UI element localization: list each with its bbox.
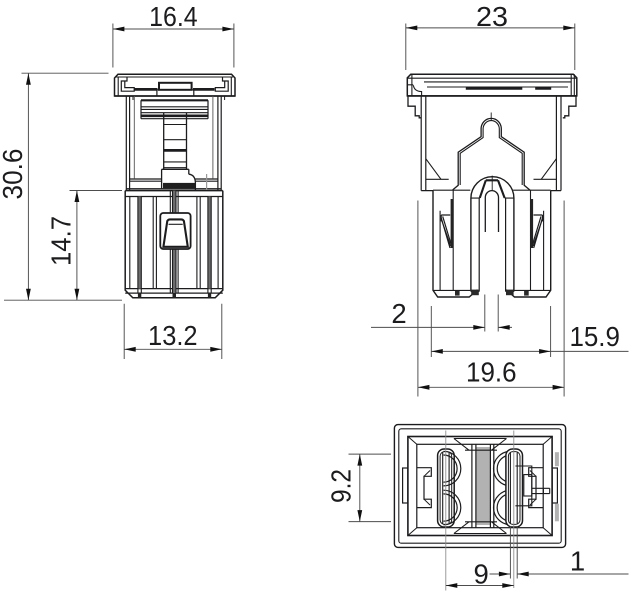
svg-text:1: 1 — [570, 546, 585, 577]
svg-text:9: 9 — [474, 559, 489, 590]
svg-text:16.4: 16.4 — [149, 1, 198, 32]
svg-text:9.2: 9.2 — [326, 469, 357, 503]
svg-text:2: 2 — [391, 298, 406, 329]
svg-text:13.2: 13.2 — [148, 320, 198, 351]
svg-text:15.9: 15.9 — [569, 321, 620, 352]
svg-text:19.6: 19.6 — [466, 357, 517, 388]
svg-text:23: 23 — [476, 1, 508, 32]
svg-text:30.6: 30.6 — [0, 149, 28, 200]
svg-text:14.7: 14.7 — [46, 216, 77, 266]
